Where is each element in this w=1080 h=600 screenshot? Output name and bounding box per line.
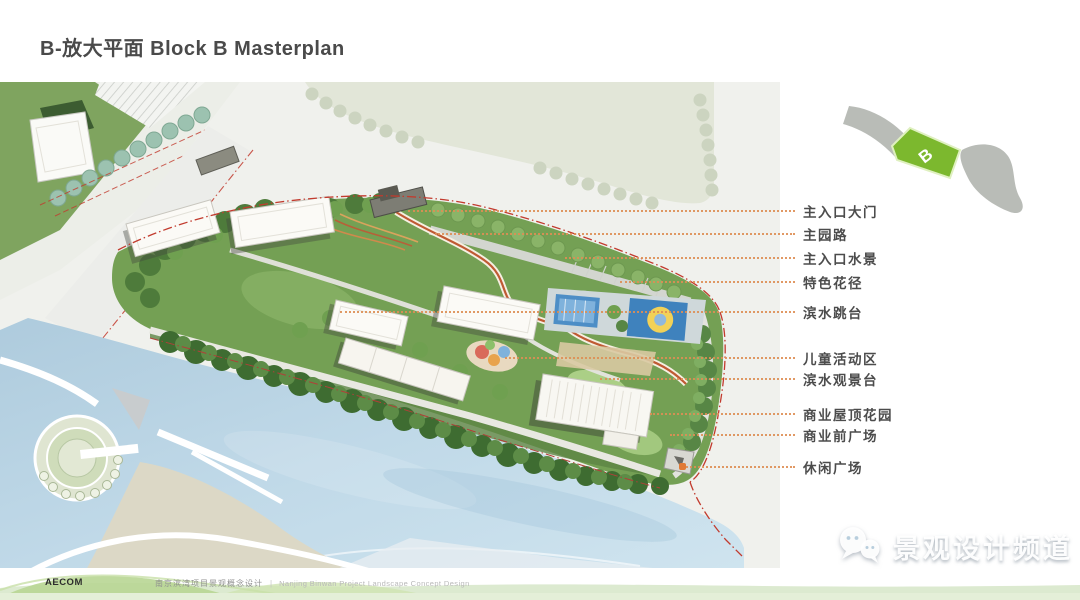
locator-map: B [843, 106, 1023, 213]
caption-divider: | [270, 579, 272, 588]
watermark: 景观设计频道 [836, 525, 1073, 567]
project-title-cn: 南京滨湾项目景观概念设计 [155, 578, 263, 589]
wechat-icon [836, 525, 884, 567]
aecom-logo: AECOM [45, 577, 83, 588]
footer-caption: 南京滨湾项目景观概念设计 | Nanjing Binwan Project La… [155, 578, 470, 589]
project-title-en: Nanjing Binwan Project Landscape Concept… [279, 579, 470, 588]
watermark-text: 景观设计频道 [893, 527, 1073, 566]
masterplan-rendering: B [0, 0, 1080, 600]
slide: B-放大平面 Block B Masterplan [0, 0, 1080, 600]
